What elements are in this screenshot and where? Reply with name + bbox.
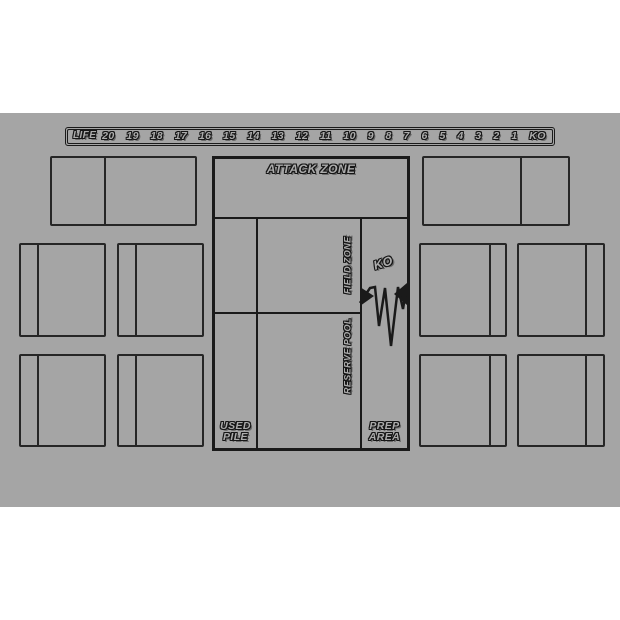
card-slot-divider — [135, 356, 137, 445]
card-slot-divider — [585, 356, 587, 445]
life-value[interactable]: 13 — [272, 131, 284, 142]
card-slot-left-mid-1[interactable] — [19, 243, 106, 337]
attack-zone-label: ATTACK ZONE — [215, 163, 407, 176]
card-slot-left-bottom-2[interactable] — [117, 354, 204, 447]
main-play-panel: ATTACK ZONE FIELD ZONE RESERVE POOL KO U… — [212, 156, 410, 451]
card-slot-divider — [37, 245, 39, 335]
card-slot-divider — [37, 356, 39, 445]
life-value[interactable]: 10 — [343, 131, 355, 142]
field-zone-label: FIELD ZONE — [337, 220, 359, 310]
card-slot-divider — [104, 158, 106, 224]
card-slot-right-bottom-2[interactable] — [517, 354, 605, 447]
card-slot-divider — [585, 245, 587, 335]
card-slot-divider — [135, 245, 137, 335]
life-value[interactable]: 16 — [199, 131, 211, 142]
card-slot-left-mid-2[interactable] — [117, 243, 204, 337]
life-value[interactable]: 5 — [439, 131, 445, 142]
life-value[interactable]: 17 — [175, 131, 187, 142]
reserve-pool-label: RESERVE POOL — [337, 316, 359, 396]
card-slot-right-top[interactable] — [422, 156, 570, 226]
life-label: LIFE — [73, 131, 96, 142]
life-value[interactable]: 12 — [296, 131, 308, 142]
life-counter-track: LIFE 2019181716151413121110987654321KO — [65, 127, 555, 146]
life-track-values: 2019181716151413121110987654321KO — [96, 131, 552, 142]
card-slot-left-top[interactable] — [50, 156, 197, 226]
life-value[interactable]: 4 — [457, 131, 463, 142]
used-pile-label: USED PILE — [215, 421, 256, 443]
life-value[interactable]: 11 — [320, 131, 332, 142]
prep-area-label: PREP AREA — [362, 421, 407, 443]
life-value[interactable]: 18 — [151, 131, 163, 142]
life-value[interactable]: 15 — [223, 131, 235, 142]
card-slot-right-mid-2[interactable] — [517, 243, 605, 337]
card-slot-right-mid-1[interactable] — [419, 243, 507, 337]
life-value[interactable]: KO — [529, 131, 546, 142]
life-value[interactable]: 6 — [421, 131, 427, 142]
card-slot-divider — [489, 356, 491, 445]
life-value[interactable]: 14 — [247, 131, 259, 142]
card-slot-right-bottom-1[interactable] — [419, 354, 507, 447]
life-value[interactable]: 8 — [386, 131, 392, 142]
playmat-page: LIFE 2019181716151413121110987654321KO — [0, 0, 620, 620]
card-slot-divider — [520, 158, 522, 224]
life-value[interactable]: 7 — [404, 131, 410, 142]
life-value[interactable]: 9 — [368, 131, 374, 142]
life-value[interactable]: 1 — [511, 131, 517, 142]
life-value[interactable]: 3 — [475, 131, 481, 142]
life-value[interactable]: 20 — [102, 131, 114, 142]
card-slot-left-bottom-1[interactable] — [19, 354, 106, 447]
card-slot-divider — [489, 245, 491, 335]
life-value[interactable]: 2 — [493, 131, 499, 142]
side-column-cell[interactable] — [215, 219, 256, 312]
life-counter-inner-frame: LIFE 2019181716151413121110987654321KO — [67, 129, 553, 144]
life-value[interactable]: 19 — [126, 131, 138, 142]
